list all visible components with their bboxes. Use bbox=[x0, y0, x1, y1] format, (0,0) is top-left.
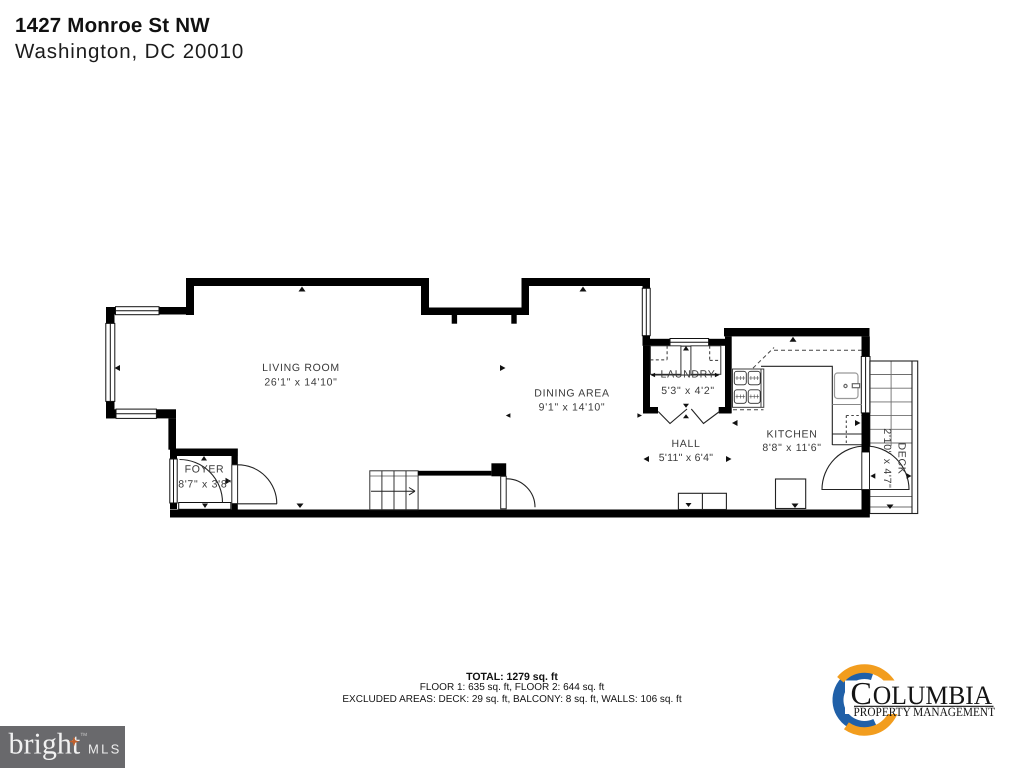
svg-text:26'1" x 14'10": 26'1" x 14'10" bbox=[264, 376, 337, 388]
svg-text:2'10" x 4'7": 2'10" x 4'7" bbox=[881, 428, 893, 488]
svg-text:8'8" x 11'6": 8'8" x 11'6" bbox=[762, 442, 821, 454]
svg-text:LAUNDRY: LAUNDRY bbox=[661, 369, 716, 381]
svg-text:DECK: DECK bbox=[896, 443, 908, 475]
svg-text:5'11" x 6'4": 5'11" x 6'4" bbox=[659, 452, 714, 464]
svg-text:HALL: HALL bbox=[671, 438, 700, 450]
svg-text:LIVING ROOM: LIVING ROOM bbox=[262, 362, 340, 374]
svg-text:PROPERTY MANAGEMENT: PROPERTY MANAGEMENT bbox=[854, 705, 996, 719]
svg-text:5'3" x 4'2": 5'3" x 4'2" bbox=[661, 385, 715, 397]
svg-text:TM: TM bbox=[81, 732, 88, 737]
svg-text:KITCHEN: KITCHEN bbox=[767, 429, 818, 441]
svg-text:MLS: MLS bbox=[88, 742, 122, 757]
svg-text:FOYER: FOYER bbox=[185, 463, 225, 475]
svg-text:8'7" x 3'8": 8'7" x 3'8" bbox=[178, 478, 232, 490]
svg-text:9'1" x 14'10": 9'1" x 14'10" bbox=[539, 402, 606, 414]
svg-text:DINING AREA: DINING AREA bbox=[534, 388, 609, 400]
svg-text:bright: bright bbox=[9, 728, 81, 761]
